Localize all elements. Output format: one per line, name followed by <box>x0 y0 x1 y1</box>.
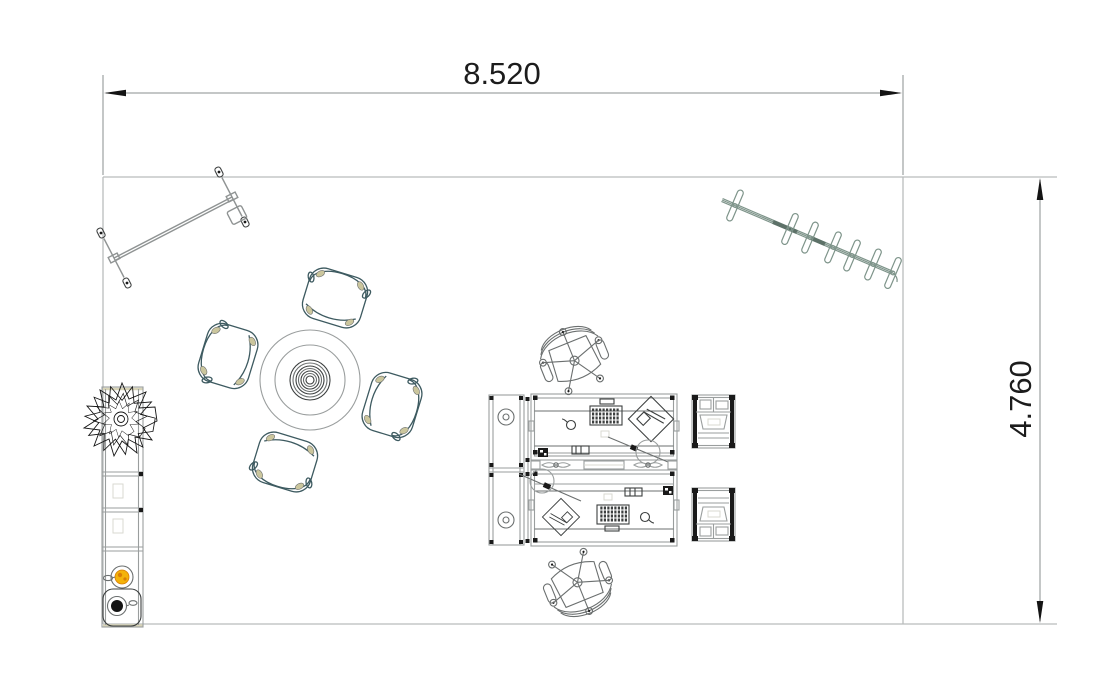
pedestal-cabinet-lower <box>692 488 735 541</box>
waste-bin-icon <box>530 469 554 493</box>
floor-plan-drawing: 8.520 4.760 <box>0 0 1108 690</box>
dimension-height-label: 4.760 <box>1003 360 1038 438</box>
task-chair-upper <box>530 316 617 401</box>
room-outline <box>103 177 1057 624</box>
arrow-up-icon <box>1037 178 1044 200</box>
dimension-height: 4.760 <box>1003 178 1043 623</box>
keyboard-icon <box>590 399 622 425</box>
shelf-unit <box>102 387 143 627</box>
keyboard-icon <box>597 505 629 531</box>
arrow-down-icon <box>1037 601 1044 623</box>
meeting-table <box>260 330 360 430</box>
task-chair-lower <box>535 542 622 627</box>
bowl-icon <box>104 566 134 588</box>
shelf-item <box>113 519 123 533</box>
dimension-width-label: 8.520 <box>463 56 541 91</box>
desk-workstation <box>489 394 679 546</box>
arrow-right-icon <box>880 90 902 97</box>
laptop-icon <box>542 498 579 535</box>
laptop-icon <box>628 396 673 441</box>
arrow-left-icon <box>104 90 126 97</box>
tub-chair-south <box>245 427 325 497</box>
desk-side-panel <box>489 395 530 545</box>
plant-icon <box>77 376 164 463</box>
shelf-item <box>113 484 123 498</box>
mobile-whiteboard <box>96 166 250 289</box>
tub-chair-north <box>295 263 375 333</box>
dimension-width: 8.520 <box>103 56 903 175</box>
sink-icon <box>103 589 141 626</box>
mouse-icon <box>641 513 655 524</box>
tub-chair-west <box>193 316 263 396</box>
tub-chair-east <box>357 365 427 445</box>
desk-link-connectors <box>531 461 677 469</box>
badge-icon <box>538 448 548 457</box>
phone-icon <box>625 488 642 496</box>
floor-plan-canvas: 8.520 4.760 <box>0 0 1108 690</box>
coat-rack <box>721 189 902 289</box>
pedestal-cabinet-upper <box>692 395 735 448</box>
mouse-icon <box>562 419 576 430</box>
badge-icon <box>663 486 673 495</box>
